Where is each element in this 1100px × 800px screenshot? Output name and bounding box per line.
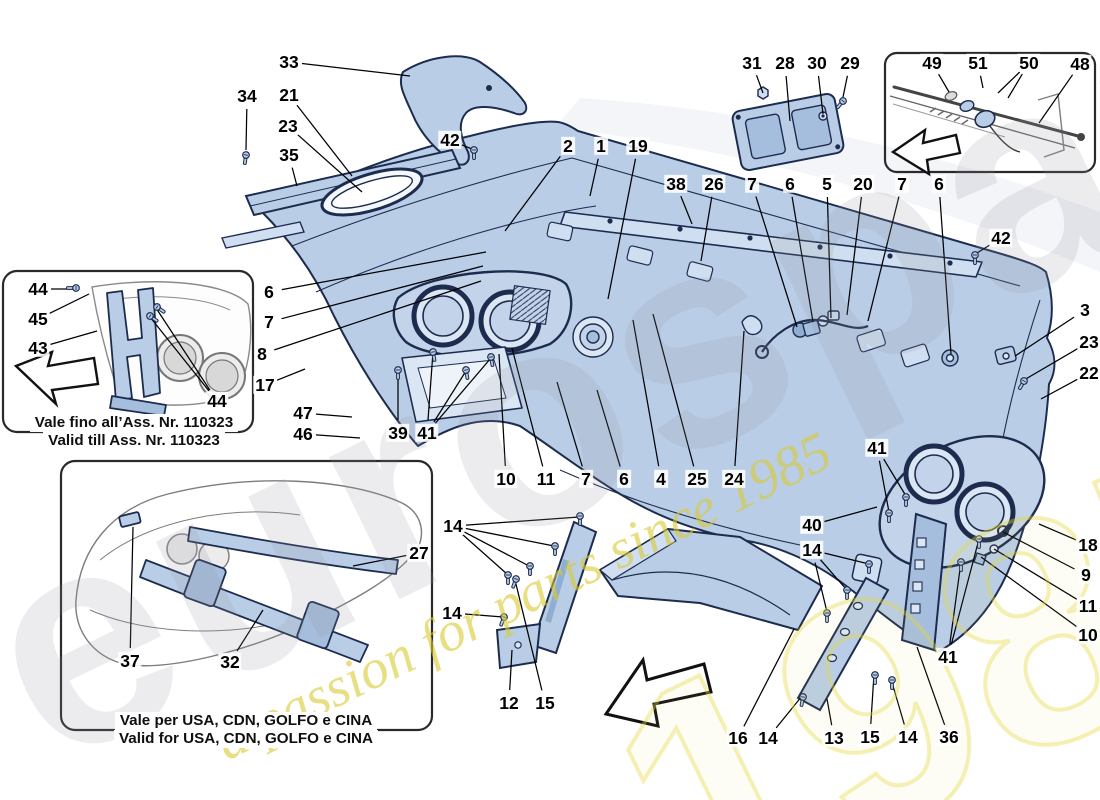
callout-41: 41 [865, 439, 888, 457]
callout-15: 15 [533, 694, 556, 712]
assembly-note-line2: Valid till Ass. Nr. 110323 [43, 432, 225, 450]
callout-43: 43 [26, 339, 49, 357]
callout-22: 22 [1077, 364, 1100, 382]
leader-line-51 [981, 76, 984, 88]
screw-icon [889, 677, 896, 690]
callout-42: 42 [438, 131, 461, 149]
callout-33: 33 [277, 53, 300, 71]
callout-7: 7 [745, 175, 759, 193]
screw-icon [505, 572, 512, 585]
leader-line-14 [466, 517, 579, 525]
callout-47: 47 [291, 404, 314, 422]
screw-icon [844, 587, 851, 600]
screw-icon [67, 285, 80, 292]
callout-45: 45 [26, 310, 49, 328]
callout-6: 6 [617, 470, 631, 488]
callout-38: 38 [664, 175, 687, 193]
leader-line-35 [292, 168, 297, 186]
release-handle-part-50 [973, 108, 997, 130]
callout-14: 14 [440, 604, 463, 622]
screw-icon [552, 543, 559, 556]
callout-1: 1 [594, 137, 608, 155]
callout-11: 11 [535, 470, 558, 488]
callout-32: 32 [218, 653, 241, 671]
leader-line-50 [1008, 74, 1022, 98]
callout-16: 16 [726, 729, 749, 747]
leader-line-43 [51, 331, 98, 344]
callout-8: 8 [255, 345, 269, 363]
screw-icon [241, 151, 249, 165]
leader-line-33 [302, 64, 410, 77]
screw-icon [824, 610, 831, 623]
callout-39: 39 [386, 424, 409, 442]
callout-37: 37 [118, 652, 141, 670]
callout-35: 35 [277, 146, 300, 164]
leader-line-14 [463, 535, 507, 574]
callout-41: 41 [936, 648, 959, 666]
callout-14: 14 [756, 729, 779, 747]
market-note-line1: Vale per USA, CDN, GOLFO e CINA [115, 712, 377, 730]
callout-6: 6 [932, 175, 946, 193]
callout-6: 6 [262, 283, 276, 301]
callout-18: 18 [1076, 536, 1099, 554]
callout-31: 31 [740, 54, 763, 72]
exploded-parts-drawing [0, 0, 1100, 800]
callout-34: 34 [235, 87, 258, 105]
leader-line-14 [465, 614, 503, 617]
callout-4: 4 [654, 470, 668, 488]
direction-arrow [606, 660, 711, 726]
leader-line-45 [50, 294, 89, 313]
callout-14: 14 [441, 517, 464, 535]
callout-24: 24 [722, 470, 745, 488]
callout-14: 14 [800, 541, 823, 559]
screw-icon [498, 613, 509, 627]
callout-23: 23 [1077, 333, 1100, 351]
callout-14: 14 [896, 728, 919, 746]
callout-20: 20 [851, 175, 874, 193]
callout-28: 28 [773, 54, 796, 72]
leader-line-49 [939, 74, 949, 92]
leader-line-47 [316, 414, 352, 417]
assembly-validity-note: Vale fino all’Ass. Nr. 110323 Valid till… [8, 414, 260, 450]
leader-line-34 [246, 109, 247, 150]
callout-25: 25 [685, 470, 708, 488]
assembly-note-line1: Vale fino all’Ass. Nr. 110323 [30, 414, 238, 432]
callout-44: 44 [26, 280, 49, 298]
callout-13: 13 [822, 729, 845, 747]
parts-diagram-page: eurospares 1985 a passion for parts sinc… [0, 0, 1100, 800]
market-note-line2: Valid for USA, CDN, GOLFO e CINA [114, 730, 378, 748]
callout-29: 29 [838, 54, 861, 72]
callout-12: 12 [497, 694, 520, 712]
leader-line-14 [465, 532, 530, 566]
callout-51: 51 [966, 54, 989, 72]
callout-46: 46 [291, 425, 314, 443]
callout-7: 7 [895, 175, 909, 193]
callout-3: 3 [1078, 301, 1092, 319]
leader-line-13 [827, 699, 832, 725]
callout-48: 48 [1068, 55, 1091, 73]
callout-26: 26 [702, 175, 725, 193]
callout-42: 42 [989, 229, 1012, 247]
callout-2: 2 [561, 137, 575, 155]
callout-17: 17 [253, 376, 276, 394]
callout-6: 6 [783, 175, 797, 193]
leader-line-18 [1039, 524, 1076, 540]
callout-40: 40 [800, 516, 823, 534]
market-validity-note: Vale per USA, CDN, GOLFO e CINA Valid fo… [76, 712, 416, 748]
callout-49: 49 [920, 54, 943, 72]
callout-21: 21 [277, 86, 300, 104]
callout-10: 10 [1076, 626, 1099, 644]
callout-27: 27 [407, 544, 430, 562]
screw-icon [527, 563, 534, 576]
leader-line-14 [466, 529, 554, 547]
callout-36: 36 [937, 728, 960, 746]
callout-30: 30 [805, 54, 828, 72]
callout-44: 44 [205, 392, 228, 410]
callout-11: 11 [1077, 597, 1100, 615]
inset-market-note-box [61, 461, 432, 730]
round-sensor-part-19 [573, 317, 613, 357]
callout-19: 19 [626, 137, 649, 155]
callout-41: 41 [415, 424, 438, 442]
callout-15: 15 [858, 728, 881, 746]
inset-release-cable-box [885, 53, 1095, 174]
screw-icon [872, 672, 879, 685]
leader-line-50 [998, 72, 1020, 93]
leader-line-14 [776, 696, 802, 728]
direction-arrow [16, 352, 98, 404]
callout-10: 10 [494, 470, 517, 488]
callout-23: 23 [276, 117, 299, 135]
callout-7: 7 [262, 313, 276, 331]
leader-line-16 [744, 629, 794, 726]
callout-7: 7 [579, 470, 593, 488]
callout-9: 9 [1079, 566, 1093, 584]
leader-line-17 [277, 369, 305, 380]
callout-5: 5 [820, 175, 834, 193]
leader-line-46 [316, 435, 360, 438]
callout-50: 50 [1017, 54, 1040, 72]
